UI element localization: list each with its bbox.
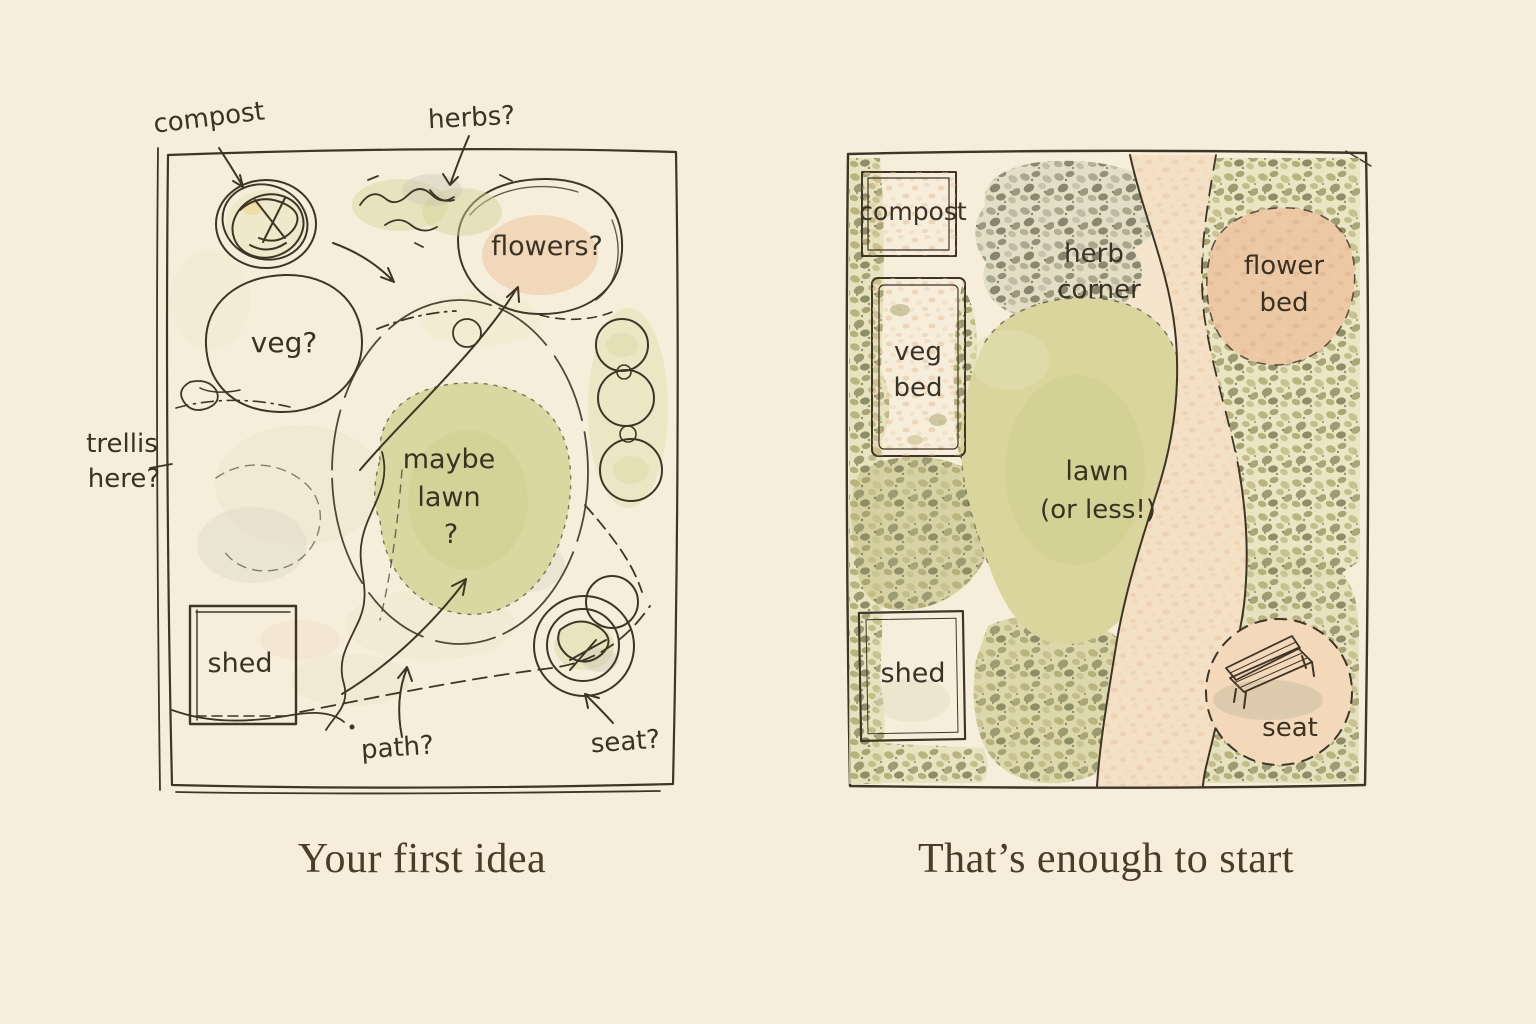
label-veg-line1: veg: [894, 337, 942, 367]
label-shed-sketch: shed: [208, 648, 273, 679]
label-lawn-sketch-line3: ?: [444, 519, 458, 550]
label-lawn-sketch-line2: lawn: [417, 482, 480, 513]
label-lawn-sketch-line1: maybe: [403, 444, 496, 475]
label-veg-line2: bed: [893, 373, 942, 403]
plan-panel: compost veg bed herb corner flower bed l…: [847, 151, 1371, 788]
plan-veg-bed: [872, 278, 965, 456]
label-herb-line1: herb: [1064, 239, 1124, 269]
plan-seat-area: [1206, 619, 1352, 765]
label-lawn-plan-line2: (or less!): [1040, 495, 1156, 525]
caption-right: That’s enough to start: [918, 836, 1294, 882]
label-trellis-line1: trellis: [86, 429, 158, 459]
label-shed-plan: shed: [881, 658, 946, 689]
label-herb-line2: corner: [1057, 275, 1141, 305]
label-flower-line2: bed: [1259, 288, 1308, 318]
garden-plan-illustration: compost herbs? flowers? veg? maybe lawn …: [0, 0, 1536, 1024]
illustration-canvas: compost herbs? flowers? veg? maybe lawn …: [0, 0, 1536, 1024]
label-herbs-sketch: herbs?: [427, 101, 515, 136]
label-path-sketch: path?: [360, 731, 435, 766]
label-flowers-sketch: flowers?: [491, 231, 603, 262]
label-trellis-line2: here?: [88, 464, 160, 494]
caption-left: Your first idea: [298, 836, 546, 882]
label-lawn-plan-line1: lawn: [1065, 456, 1128, 487]
label-veg-sketch: veg?: [251, 326, 317, 359]
label-seat-sketch: seat?: [590, 725, 661, 760]
label-seat-plan: seat: [1262, 713, 1318, 743]
label-flower-line1: flower: [1244, 251, 1325, 281]
label-compost-plan: compost: [859, 197, 967, 226]
